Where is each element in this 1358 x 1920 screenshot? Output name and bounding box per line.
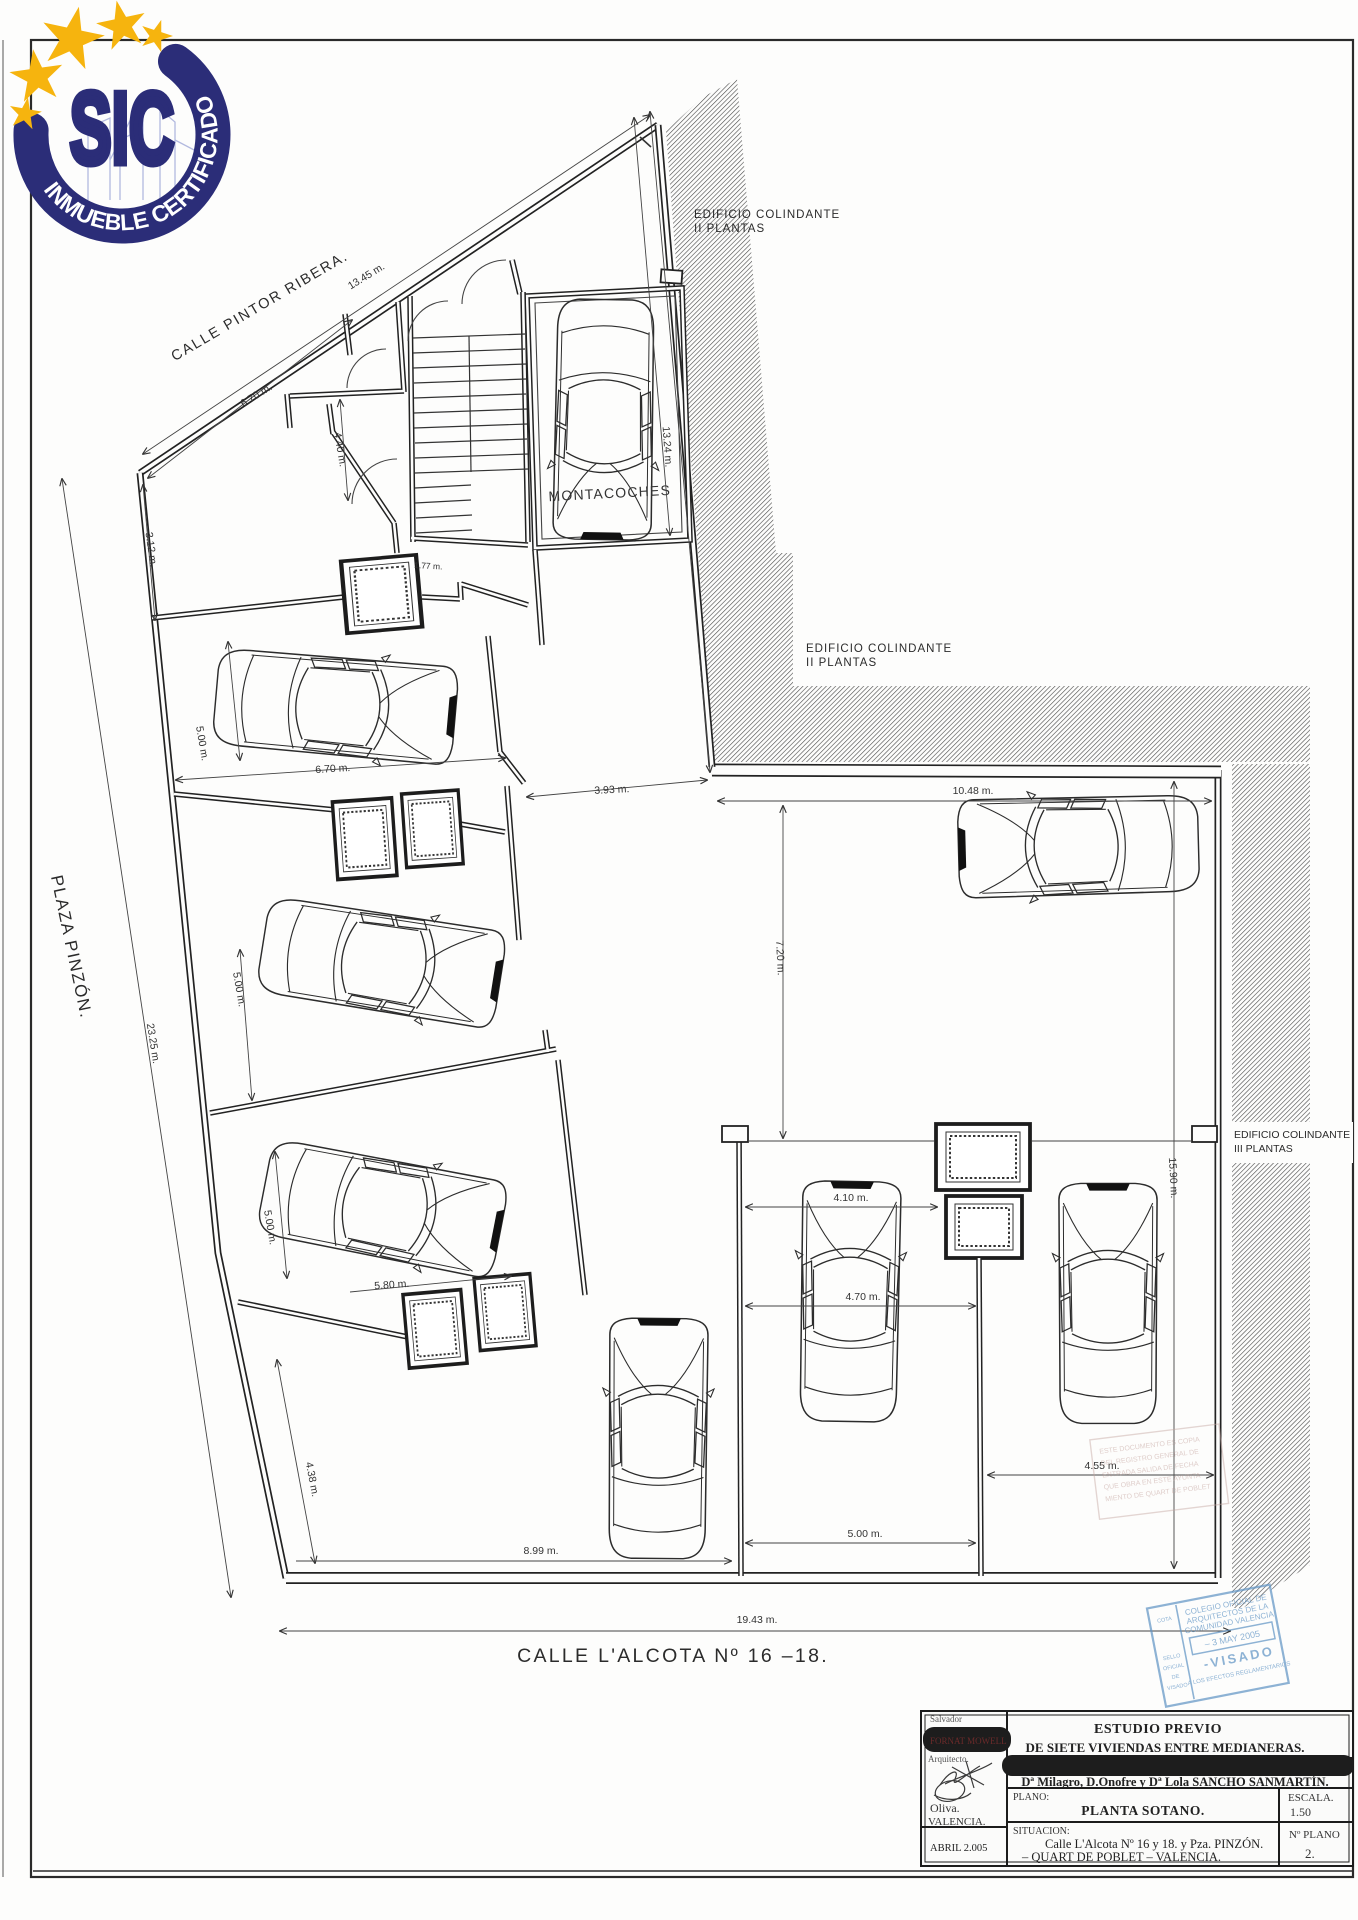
svg-text:VISADO: VISADO <box>1167 1682 1189 1692</box>
svg-text:EDIFICIO COLINDANTE: EDIFICIO COLINDANTE <box>806 643 952 655</box>
svg-text:EDIFICIO COLINDANTE: EDIFICIO COLINDANTE <box>1234 1129 1350 1141</box>
svg-text:OFICIAL: OFICIAL <box>1163 1663 1185 1673</box>
svg-text:DE: DE <box>1171 1674 1180 1681</box>
svg-text:Calle L'Alcota Nº 16 y 18. y P: Calle L'Alcota Nº 16 y 18. y Pza. PINZÓN… <box>1045 1837 1263 1851</box>
svg-text:ESTUDIO PREVIO: ESTUDIO PREVIO <box>1094 1722 1222 1737</box>
svg-text:COTA: COTA <box>1157 1616 1173 1625</box>
svg-text:1.50: 1.50 <box>1290 1805 1311 1819</box>
svg-text:5.00 m.: 5.00 m. <box>193 725 211 762</box>
svg-text:4.38 m.: 4.38 m. <box>303 1461 321 1498</box>
svg-text:7.20 m.: 7.20 m. <box>773 940 787 976</box>
svg-text:SIC: SIC <box>70 72 174 185</box>
svg-text:EDIFICIO COLINDANTE: EDIFICIO COLINDANTE <box>694 209 840 221</box>
svg-text:Salvador: Salvador <box>930 1714 962 1724</box>
svg-text:3.93 m.: 3.93 m. <box>594 783 630 797</box>
svg-text:10.48 m.: 10.48 m. <box>953 785 994 797</box>
svg-text:4.40 m.: 4.40 m. <box>331 431 349 468</box>
svg-text:MONTACOCHES: MONTACOCHES <box>548 482 671 504</box>
svg-text:PLAZA PINZÓN.: PLAZA PINZÓN. <box>47 873 96 1020</box>
svg-text:SITUACION:: SITUACION: <box>1013 1826 1070 1837</box>
svg-text:8.99 m.: 8.99 m. <box>523 1545 558 1557</box>
svg-text:4.70 m.: 4.70 m. <box>845 1291 880 1303</box>
svg-text:ESCALA.: ESCALA. <box>1288 1792 1334 1804</box>
svg-text:Arquitecto.: Arquitecto. <box>928 1754 969 1764</box>
svg-text:23.25 m.: 23.25 m. <box>144 1022 162 1064</box>
svg-text:II PLANTAS: II PLANTAS <box>694 223 765 235</box>
svg-text:4.10 m.: 4.10 m. <box>833 1192 868 1204</box>
svg-text:SELLO: SELLO <box>1163 1653 1182 1662</box>
svg-text:15.90 m.: 15.90 m. <box>1166 1157 1180 1198</box>
svg-text:5.00 m.: 5.00 m. <box>847 1528 882 1540</box>
svg-text:5.80 m.: 5.80 m. <box>374 1278 410 1292</box>
svg-text:– 3 MAY 2005: – 3 MAY 2005 <box>1204 1629 1261 1650</box>
svg-text:6.70 m.: 6.70 m. <box>315 762 351 776</box>
svg-text:ABRIL 2.005: ABRIL 2.005 <box>930 1843 987 1854</box>
svg-text:Oliva.: Oliva. <box>930 1801 960 1815</box>
svg-text:A LOS EFECTOS REGLAMENTARIOS: A LOS EFECTOS REGLAMENTARIOS <box>1187 1661 1291 1687</box>
svg-text:2.: 2. <box>1305 1846 1315 1861</box>
svg-text:3.12 m.: 3.12 m. <box>143 531 160 567</box>
svg-text:DE SIETE VIVIENDAS ENTRE M: DE SIETE VIVIENDAS ENTRE MEDIANERAS. <box>1026 1740 1305 1755</box>
svg-text:PLANTA SOTANO.: PLANTA SOTANO. <box>1081 1803 1205 1818</box>
svg-text:VALENCIA.: VALENCIA. <box>928 1816 986 1828</box>
svg-text:1.77 m.: 1.77 m. <box>414 560 443 571</box>
svg-text:13.45 m.: 13.45 m. <box>346 261 387 293</box>
svg-text:CALLE L'ALCOTA Nº 16 –18.: CALLE L'ALCOTA Nº 16 –18. <box>517 1645 829 1667</box>
svg-text:Nº PLANO: Nº PLANO <box>1289 1829 1340 1841</box>
svg-text:FORNAT MOWELL: FORNAT MOWELL <box>930 1736 1007 1746</box>
svg-text:6.70 m.: 6.70 m. <box>238 381 274 410</box>
svg-text:Dª Milagro, D.Onofre y Dª Lola: Dª Milagro, D.Onofre y Dª Lola SANCHO SA… <box>1021 1775 1328 1789</box>
svg-text:II PLANTAS: II PLANTAS <box>806 657 877 669</box>
svg-text:– QUART DE POBLET –: – QUART DE POBLET – VALENCIA. <box>1021 1850 1221 1864</box>
svg-text:III PLANTAS: III PLANTAS <box>1234 1143 1293 1155</box>
svg-text:19.43 m.: 19.43 m. <box>737 1614 778 1626</box>
svg-text:5.00 m.: 5.00 m. <box>230 971 248 1008</box>
svg-text:13.24 m.: 13.24 m. <box>660 426 675 468</box>
svg-text:PLANO:: PLANO: <box>1013 1792 1049 1803</box>
